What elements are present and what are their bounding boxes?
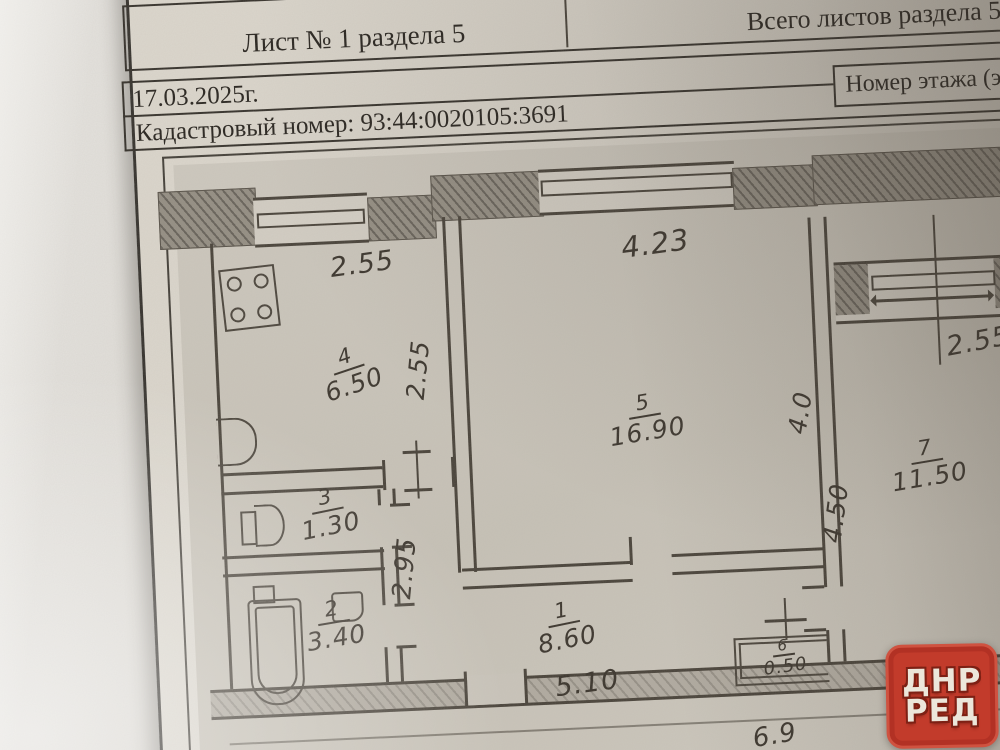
entrance-door-opening <box>467 673 526 706</box>
room7-window-band <box>833 254 1000 325</box>
stove-burner <box>256 304 273 321</box>
wall-top-left <box>158 188 259 250</box>
living-room-window <box>540 172 733 197</box>
arrow-left-icon <box>870 295 877 307</box>
stove-icon <box>218 264 281 332</box>
stove-burner <box>226 276 243 293</box>
wall-top-step <box>367 194 437 241</box>
kitchen-window-band <box>253 193 369 248</box>
room7-window <box>871 270 996 291</box>
wall-top-step-up <box>430 171 544 222</box>
document-photo: Лист № 1 раздела 5 Всего листов раздела … <box>0 0 1000 750</box>
stove-burner <box>253 273 270 290</box>
watermark-line2: РЕД <box>905 695 980 727</box>
room7-window-dimension-line <box>872 294 992 302</box>
arrow-right-icon <box>988 289 995 301</box>
room7-window-jamb-left <box>834 264 870 315</box>
wall-top-right-step <box>732 164 818 210</box>
stove-burner <box>230 307 247 324</box>
kitchen-window <box>257 209 366 229</box>
dim-kitchen-depth: 2.55 <box>401 326 434 414</box>
tilted-paper-wrapper: Лист № 1 раздела 5 Всего листов раздела … <box>0 0 1000 750</box>
watermark-badge: ДНР РЕД <box>885 643 999 749</box>
dim-corridor-depth: 2.95 <box>388 522 422 614</box>
living-window-band <box>538 161 736 216</box>
